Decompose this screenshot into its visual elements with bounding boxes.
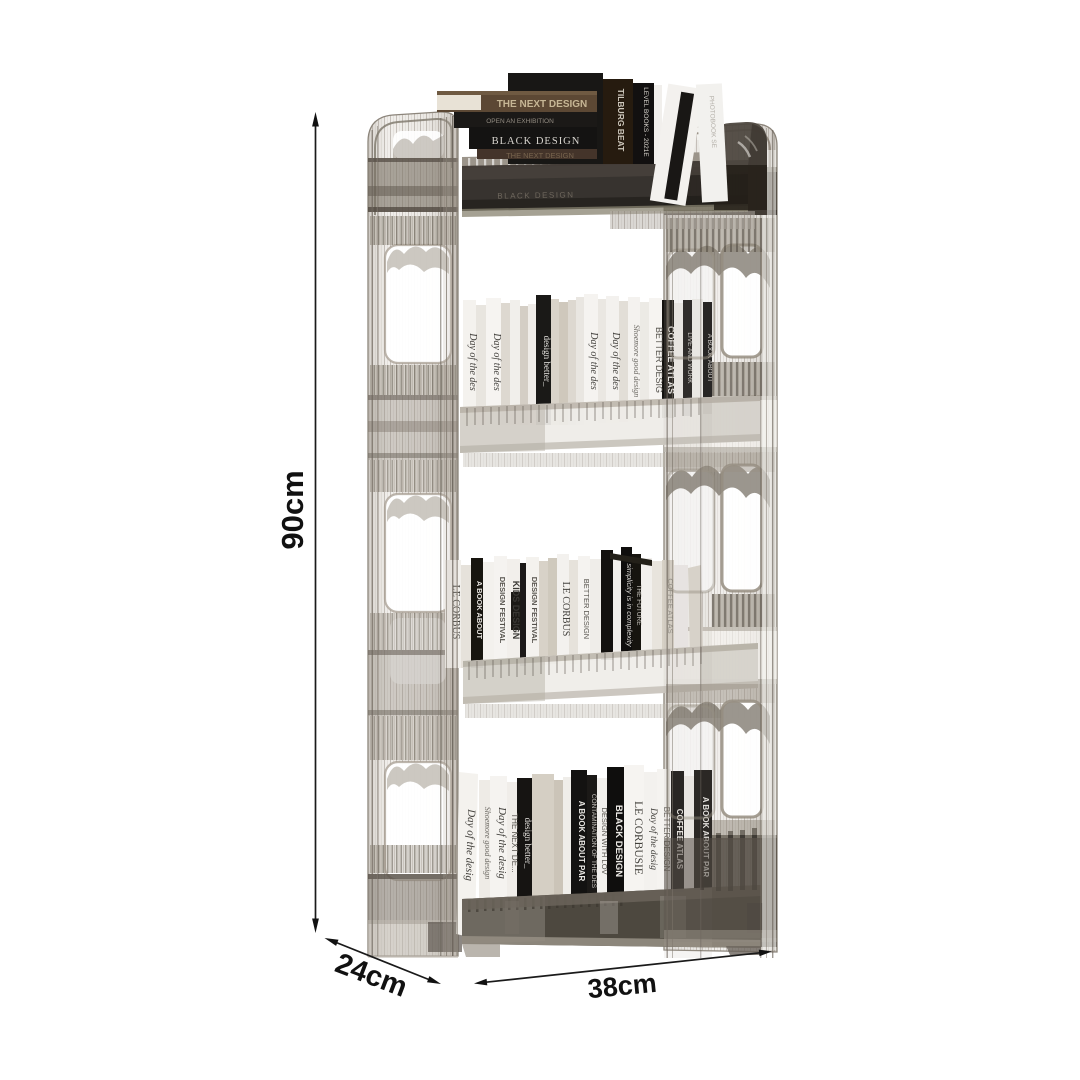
svg-text:Day of the des: Day of the des: [467, 332, 478, 391]
svg-text:A BOOK ABOUT: A BOOK ABOUT: [475, 581, 484, 640]
svg-text:DESIGN FESTIVAL: DESIGN FESTIVAL: [498, 577, 507, 644]
svg-text:THE NEXT DESIGN: THE NEXT DESIGN: [497, 99, 588, 110]
svg-text:LE CORBUS: LE CORBUS: [560, 582, 571, 637]
svg-text:Day of the des: Day of the des: [610, 331, 621, 390]
svg-text:design better_: design better_: [523, 818, 533, 869]
svg-text:BETTER DESIG: BETTER DESIG: [654, 327, 664, 393]
svg-text:BLACK DESIGN: BLACK DESIGN: [492, 136, 581, 147]
svg-text:Shoemore good design: Shoemore good design: [632, 325, 641, 398]
svg-text:Day of the desig: Day of the desig: [463, 808, 478, 882]
svg-text:LE CORBUSIE: LE CORBUSIE: [632, 801, 644, 875]
svg-text:Day of the des: Day of the des: [491, 332, 502, 391]
svg-text:OPEN AN EXHIBITION: OPEN AN EXHIBITION: [486, 118, 554, 125]
svg-text:DESIGN WITH LOV: DESIGN WITH LOV: [600, 807, 609, 874]
svg-text:KIDS DESIGN: KIDS DESIGN: [511, 581, 521, 640]
svg-text:simplicity is in complexity: simplicity is in complexity: [625, 563, 634, 648]
svg-text:A BOOK ABOUT PAR: A BOOK ABOUT PAR: [577, 801, 586, 882]
svg-text:THE NEXT DE...: THE NEXT DE...: [510, 813, 519, 872]
svg-text:Day of the desig: Day of the desig: [496, 806, 508, 879]
svg-text:Day of the des: Day of the des: [588, 331, 599, 390]
svg-text:90cm: 90cm: [275, 470, 310, 549]
svg-text:THE FUTURE: THE FUTURE: [635, 584, 642, 626]
svg-text:THE NEXT DESIGN: THE NEXT DESIGN: [506, 151, 574, 160]
svg-text:Shoemore good design: Shoemore good design: [483, 807, 492, 880]
svg-text:BLACK DESIGN: BLACK DESIGN: [613, 805, 624, 877]
svg-text:Day of the desig: Day of the desig: [648, 807, 659, 870]
svg-text:design better_: design better_: [542, 336, 552, 387]
svg-text:BLACK DESIGN: BLACK DESIGN: [497, 190, 574, 200]
svg-text:TILBURG BEAT: TILBURG BEAT: [616, 89, 626, 152]
svg-text:LEVEL BOOKS - 2021E: LEVEL BOOKS - 2021E: [642, 87, 649, 157]
svg-text:BETTER DESIGN: BETTER DESIGN: [582, 579, 591, 639]
svg-text:CONTAMINATION OF THE DES: CONTAMINATION OF THE DES: [590, 794, 597, 889]
svg-text:DESIGN FESTIVAL: DESIGN FESTIVAL: [530, 577, 539, 644]
